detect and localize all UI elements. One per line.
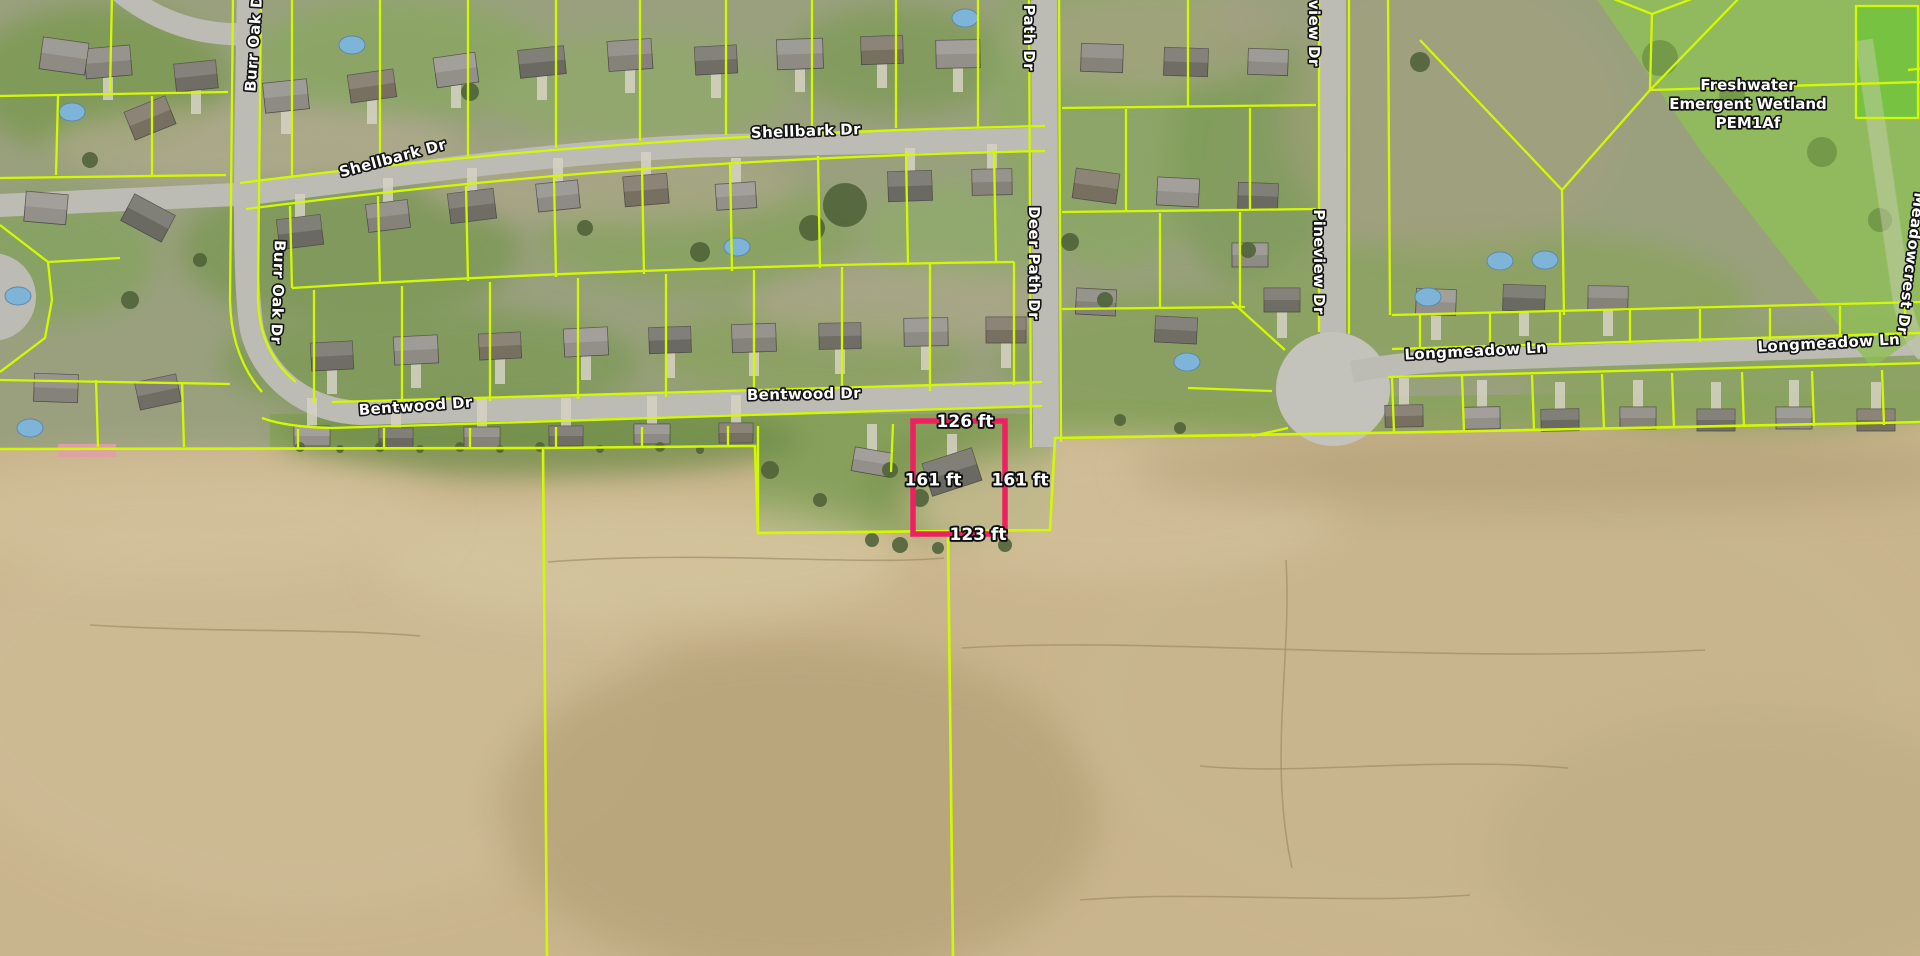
street-label-shellbark-dr-east: Shellbark Dr <box>751 120 862 142</box>
street-label-deer-path-dr-south: Deer Path Dr <box>1025 206 1043 320</box>
aerial-map[interactable]: 126 ft161 ft123 ft161 ft Burr Oak DrBurr… <box>0 0 1920 956</box>
street-label-bentwood-dr-east: Bentwood Dr <box>747 384 862 404</box>
street-label-pineview-dr-north: Pineview Dr <box>1305 0 1323 67</box>
street-label-pineview-dr-south: Pineview Dr <box>1310 209 1328 315</box>
street-label-deer-path-dr-north: Deer Path Dr <box>1020 0 1038 71</box>
street-label-burr-oak-dr-south: Burr Oak Dr <box>267 240 289 345</box>
map-viewport[interactable]: 126 ft161 ft123 ft161 ft Burr Oak DrBurr… <box>0 0 1920 956</box>
dimension-label-top: 126 ft <box>937 412 994 432</box>
dimension-label-left: 161 ft <box>905 471 962 491</box>
dimension-label-bottom: 123 ft <box>950 525 1007 545</box>
dimension-label-right: 161 ft <box>992 471 1049 491</box>
